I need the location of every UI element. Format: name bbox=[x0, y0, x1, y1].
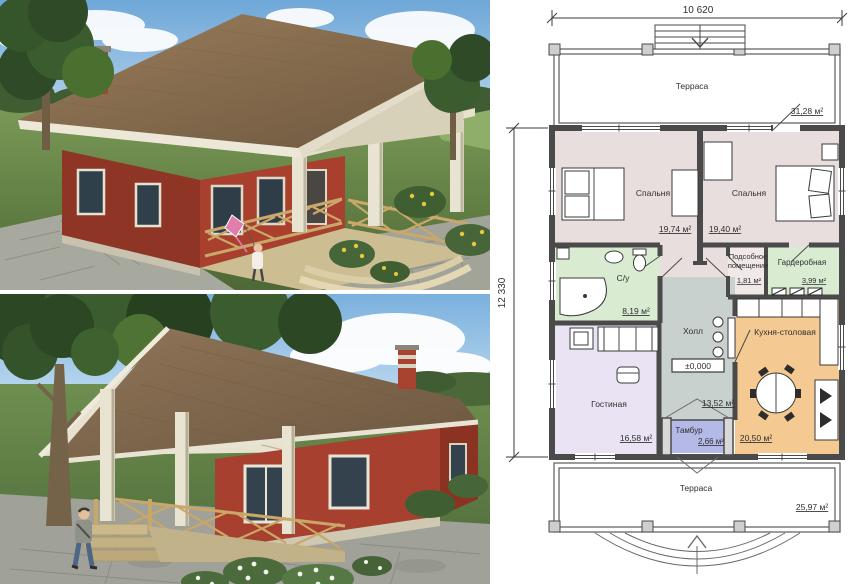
chimney bbox=[395, 345, 419, 389]
label-kitchen: Кухня-столовая bbox=[754, 327, 816, 337]
coffee-table bbox=[617, 367, 639, 383]
closet bbox=[672, 170, 698, 216]
floor-plan-svg: ±0,000 10 620 12 330 Терраса 31,28 м² Сп… bbox=[490, 0, 850, 584]
house-render-bottom bbox=[0, 294, 490, 584]
label-living: Гостиная bbox=[591, 399, 627, 409]
window bbox=[136, 184, 160, 226]
label-hall: Холл bbox=[683, 326, 703, 336]
label-terrace-top: Терраса bbox=[676, 81, 709, 91]
curved-steps bbox=[595, 533, 800, 574]
window bbox=[330, 456, 368, 508]
bed-right bbox=[776, 166, 834, 221]
label-bedroom-left: Спальня bbox=[636, 188, 671, 198]
house-render-top bbox=[0, 0, 490, 290]
area-kitchen: 20,50 м² bbox=[740, 433, 772, 443]
sink bbox=[605, 251, 623, 263]
terrace-top-steps bbox=[655, 25, 745, 49]
label-tambur: Тамбур bbox=[675, 426, 703, 435]
dimension-height bbox=[506, 123, 548, 462]
elevation-value: ±0,000 bbox=[685, 361, 711, 371]
area-living: 16,58 м² bbox=[620, 433, 652, 443]
coat-hooks bbox=[713, 317, 723, 357]
closet bbox=[704, 142, 732, 180]
area-terrace-bottom: 25,97 м² bbox=[796, 502, 828, 512]
child-body bbox=[252, 252, 263, 269]
open-door-leaf bbox=[728, 318, 735, 358]
area-terrace-top: 31,28 м² bbox=[791, 106, 823, 116]
floor-plan: ±0,000 10 620 12 330 Терраса 31,28 м² Сп… bbox=[490, 0, 850, 584]
window bbox=[78, 170, 104, 214]
dimension-width-label: 10 620 bbox=[683, 5, 714, 16]
area-tambur: 2,66 м² bbox=[698, 437, 724, 446]
kitchen-counter bbox=[815, 380, 838, 440]
washer bbox=[557, 248, 569, 259]
elevation-marker: ±0,000 bbox=[672, 359, 724, 372]
area-utility: 1,81 м² bbox=[737, 276, 762, 285]
wardrobe-shelves bbox=[772, 288, 822, 295]
label-bathroom: С/у bbox=[617, 273, 631, 283]
label-utility-line2: помещение bbox=[728, 261, 768, 270]
render-column bbox=[0, 0, 490, 584]
armchair bbox=[570, 328, 593, 349]
sofa bbox=[598, 327, 658, 351]
dimension-height-label: 12 330 bbox=[497, 277, 508, 308]
render-bottom-svg bbox=[0, 294, 490, 584]
toilet bbox=[633, 249, 646, 271]
label-utility-line1: Подсобное bbox=[729, 252, 768, 261]
bed-left bbox=[562, 168, 624, 220]
house-project-sheet: ±0,000 10 620 12 330 Терраса 31,28 м² Сп… bbox=[0, 0, 850, 584]
area-bedroom-right: 19,40 м² bbox=[709, 224, 741, 234]
nightstand bbox=[822, 144, 838, 160]
label-wardrobe: Гардеробная bbox=[778, 258, 826, 267]
area-wardrobe: 3,99 м² bbox=[802, 276, 827, 285]
area-bedroom-left: 19,74 м² bbox=[659, 224, 691, 234]
label-terrace-bottom: Терраса bbox=[680, 483, 713, 493]
area-bathroom: 8,19 м² bbox=[622, 306, 650, 316]
label-bedroom-right: Спальня bbox=[732, 188, 767, 198]
child-head bbox=[254, 244, 263, 253]
area-hall: 13,52 м² bbox=[702, 398, 734, 408]
render-top-svg bbox=[0, 0, 490, 290]
